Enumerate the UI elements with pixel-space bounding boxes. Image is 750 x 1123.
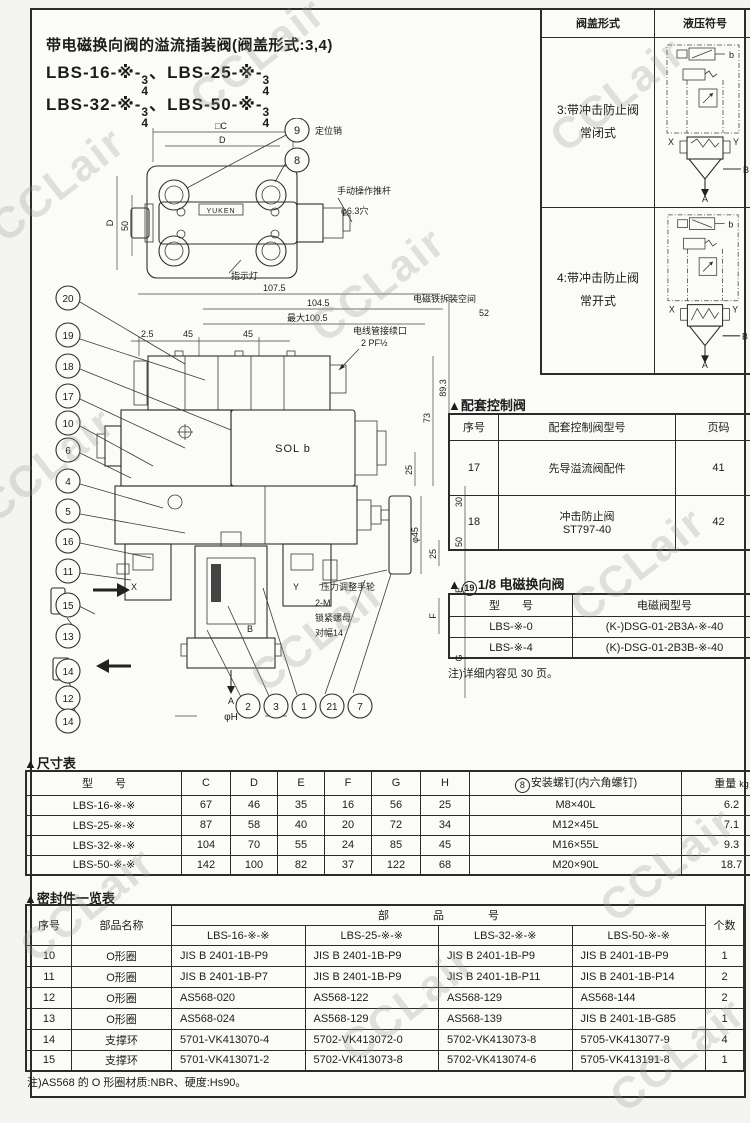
label-solenoid-space: 电磁铁拆装空间 — [413, 293, 476, 304]
seal-parts-table: 序号 部品名称 部 品 号 个数 LBS-16-※-※ LBS-25-※-※ L… — [25, 904, 745, 1072]
dim-row: LBS-32-※-※1047055248545M16×55L9.3 — [26, 835, 750, 855]
svg-text:7: 7 — [357, 702, 363, 713]
technical-drawing: □C D YUKEN D 50 9 定位销 8 手动操作推杆 φ6.3穴 指示灯 — [35, 118, 507, 748]
svg-text:Y: Y — [733, 137, 739, 147]
svg-text:18: 18 — [62, 362, 74, 373]
svg-text:3: 3 — [273, 702, 279, 713]
seal-row: 11O形圈JIS B 2401-1B-P7JIS B 2401-1B-P9JIS… — [26, 966, 744, 987]
svg-text:X: X — [669, 304, 675, 314]
dim-107-5: 107.5 — [263, 283, 286, 293]
seal-table-note: 注)AS568 的 O 形圈材质:NBR、硬度:Hs90。 — [27, 1074, 246, 1090]
label-conduit-size: 2 PF½ — [361, 338, 388, 348]
callouts-bottom: 2 3 1 21 7 — [207, 574, 391, 718]
model-code: LBS-16-※- — [46, 63, 141, 82]
port-b-label: B — [247, 624, 253, 634]
svg-text:A: A — [702, 194, 708, 203]
label-qty: 2-M — [315, 598, 331, 608]
model-code: LBS-50-※- — [167, 95, 262, 114]
label-sol-b: SOL b — [275, 443, 311, 455]
svg-text:10: 10 — [62, 419, 74, 430]
matching-valves-heading: ▲配套控制阀 — [448, 395, 526, 414]
svg-text:b: b — [728, 219, 733, 229]
dim-row: LBS-16-※-※674635165625M8×40L6.2 — [26, 795, 750, 815]
svg-text:A: A — [702, 360, 708, 369]
svg-text:6: 6 — [65, 446, 71, 457]
svg-text:1: 1 — [301, 702, 307, 713]
label-manual-rod: 手动操作推杆 — [337, 185, 391, 196]
solenoid-valve-table: 型 号 电磁阀型号 LBS-※-0 (K-)DSG-01-2B3A-※-40 L… — [448, 593, 750, 659]
dim-max-100-5: 最大100.5 — [287, 312, 328, 323]
seal-row: 12O形圈AS568-020AS568-122AS568-129AS568-14… — [26, 987, 744, 1008]
brand-label: YUKEN — [206, 208, 235, 215]
dim-50: 50 — [120, 221, 130, 231]
dim-c: □C — [215, 121, 227, 131]
svg-text:17: 17 — [62, 392, 74, 403]
seal-row: 13O形圈AS568-024AS568-129AS568-139JIS B 24… — [26, 1008, 744, 1029]
svg-text:15: 15 — [62, 601, 74, 612]
model-code: LBS-32-※- — [46, 95, 141, 114]
port-y-label: Y — [293, 582, 299, 592]
solenoid-valve-row: LBS-※-0 (K-)DSG-01-2B3A-※-40 — [449, 616, 750, 637]
label-indicator-lamp: 指示灯 — [231, 270, 258, 281]
svg-text:Y: Y — [732, 304, 738, 314]
label-locknut: 锁紧螺母 — [315, 612, 351, 623]
seal-row: 10O形圈JIS B 2401-1B-P9JIS B 2401-1B-P9JIS… — [26, 945, 744, 966]
svg-text:14: 14 — [62, 667, 74, 678]
matching-valves-table: 序号 配套控制阀型号 页码 17 先导溢流阀配件 41 18 冲击防止阀ST79… — [448, 413, 750, 551]
svg-text:20: 20 — [62, 294, 74, 305]
dim-25b: 25 — [428, 549, 438, 559]
matching-valve-row: 18 冲击防止阀ST797-40 42 — [449, 495, 750, 550]
dim-45a: 45 — [183, 329, 193, 339]
solenoid-valve-row: LBS-※-4 (K)-DSG-01-2B3B-※-40 — [449, 637, 750, 658]
cover-form-header: 阀盖形式 — [541, 9, 655, 37]
cover-form-4-label: 4:带冲击防止阀常开式 — [541, 207, 655, 374]
dim-104-5: 104.5 — [307, 298, 330, 308]
dim-dia45: φ45 — [410, 527, 420, 543]
svg-text:8: 8 — [294, 155, 300, 167]
svg-text:B: B — [742, 331, 748, 341]
circled-8: 8 — [515, 778, 530, 793]
catalog-page: { "watermark": "CCLair", "title_block": … — [0, 0, 750, 1110]
hydraulic-symbol-drawing: b X Y B A — [659, 39, 750, 203]
cover-form-table: 阀盖形式 液压符号 3:带冲击防止阀常闭式 b X Y — [540, 8, 750, 375]
dim-f: F — [428, 613, 438, 619]
svg-text:9: 9 — [294, 125, 300, 137]
dim-phi-h: φH — [224, 712, 238, 723]
cover-form-3-label: 3:带冲击防止阀常闭式 — [541, 37, 655, 207]
svg-text:14: 14 — [62, 717, 74, 728]
dim-row: LBS-25-※-※875840207234M12×45L7.1 — [26, 815, 750, 835]
dim-d-top: D — [219, 135, 226, 145]
separator: 、 — [149, 95, 167, 114]
svg-text:21: 21 — [326, 702, 338, 713]
separator: 、 — [149, 63, 167, 82]
label-locating-pin: 定位销 — [315, 125, 342, 136]
svg-text:2: 2 — [245, 702, 251, 713]
page-title: 带电磁换向阀的溢流插装阀(阀盖形式:3,4) — [46, 34, 333, 55]
seal-row: 14支撑环5701-VK413070-45702-VK413072-05702-… — [26, 1029, 744, 1050]
svg-text:X: X — [668, 137, 674, 147]
hydraulic-symbol-4: b X Y B A — [655, 207, 750, 374]
svg-text:5: 5 — [65, 507, 71, 518]
solenoid-table-note: 注)详细内容见 30 页。 — [448, 665, 558, 681]
svg-text:16: 16 — [62, 537, 74, 548]
svg-text:B: B — [743, 165, 749, 175]
model-code: LBS-25-※- — [167, 63, 262, 82]
label-flats: 对幅14 — [315, 627, 343, 638]
hydraulic-symbol-3: b X Y B A — [655, 37, 750, 207]
top-view: □C D YUKEN D 50 9 定位销 8 手动操作推杆 φ6.3穴 指示灯 — [105, 118, 391, 281]
label-conduit-port: 电线管接续口 — [353, 325, 407, 336]
dim-73: 73 — [422, 413, 432, 423]
dimension-table: 型 号 C D E F G H 8安装螺钉(内六角螺钉) 重量 kg LBS-1… — [25, 770, 750, 876]
dim-89-3: 89.3 — [438, 379, 448, 397]
matching-valve-row: 17 先导溢流阀配件 41 — [449, 440, 750, 495]
svg-text:11: 11 — [63, 567, 74, 578]
dim-d-left: D — [105, 219, 115, 226]
dim-2-5: 2.5 — [141, 329, 154, 339]
dim-25a: 25 — [404, 465, 414, 475]
hydraulic-symbol-drawing: b X Y B A — [659, 209, 750, 369]
svg-text:4: 4 — [65, 477, 71, 488]
section-view: 107.5 104.5 最大100.5 电磁铁拆装空间 52 电线管接续口 2 … — [51, 283, 489, 723]
seal-row: 15支撑环5701-VK413071-25702-VK413073-85702-… — [26, 1050, 744, 1071]
dim-45b: 45 — [243, 329, 253, 339]
svg-text:19: 19 — [62, 331, 74, 342]
port-a-label: A — [228, 696, 234, 706]
pressure-handwheel — [389, 496, 411, 574]
port-x-label: X — [131, 582, 137, 592]
callouts-left: 20 19 18 17 10 6 4 5 16 11 15 13 14 12 1… — [56, 286, 231, 733]
svg-text:12: 12 — [62, 694, 74, 705]
svg-text:13: 13 — [62, 632, 74, 643]
dim-row: LBS-50-※-※142100823712268M20×90L18.7 — [26, 855, 750, 875]
svg-text:b: b — [729, 50, 734, 60]
label-solenoid-space-value: 52 — [479, 308, 489, 318]
hydraulic-symbol-header: 液压符号 — [655, 9, 750, 37]
